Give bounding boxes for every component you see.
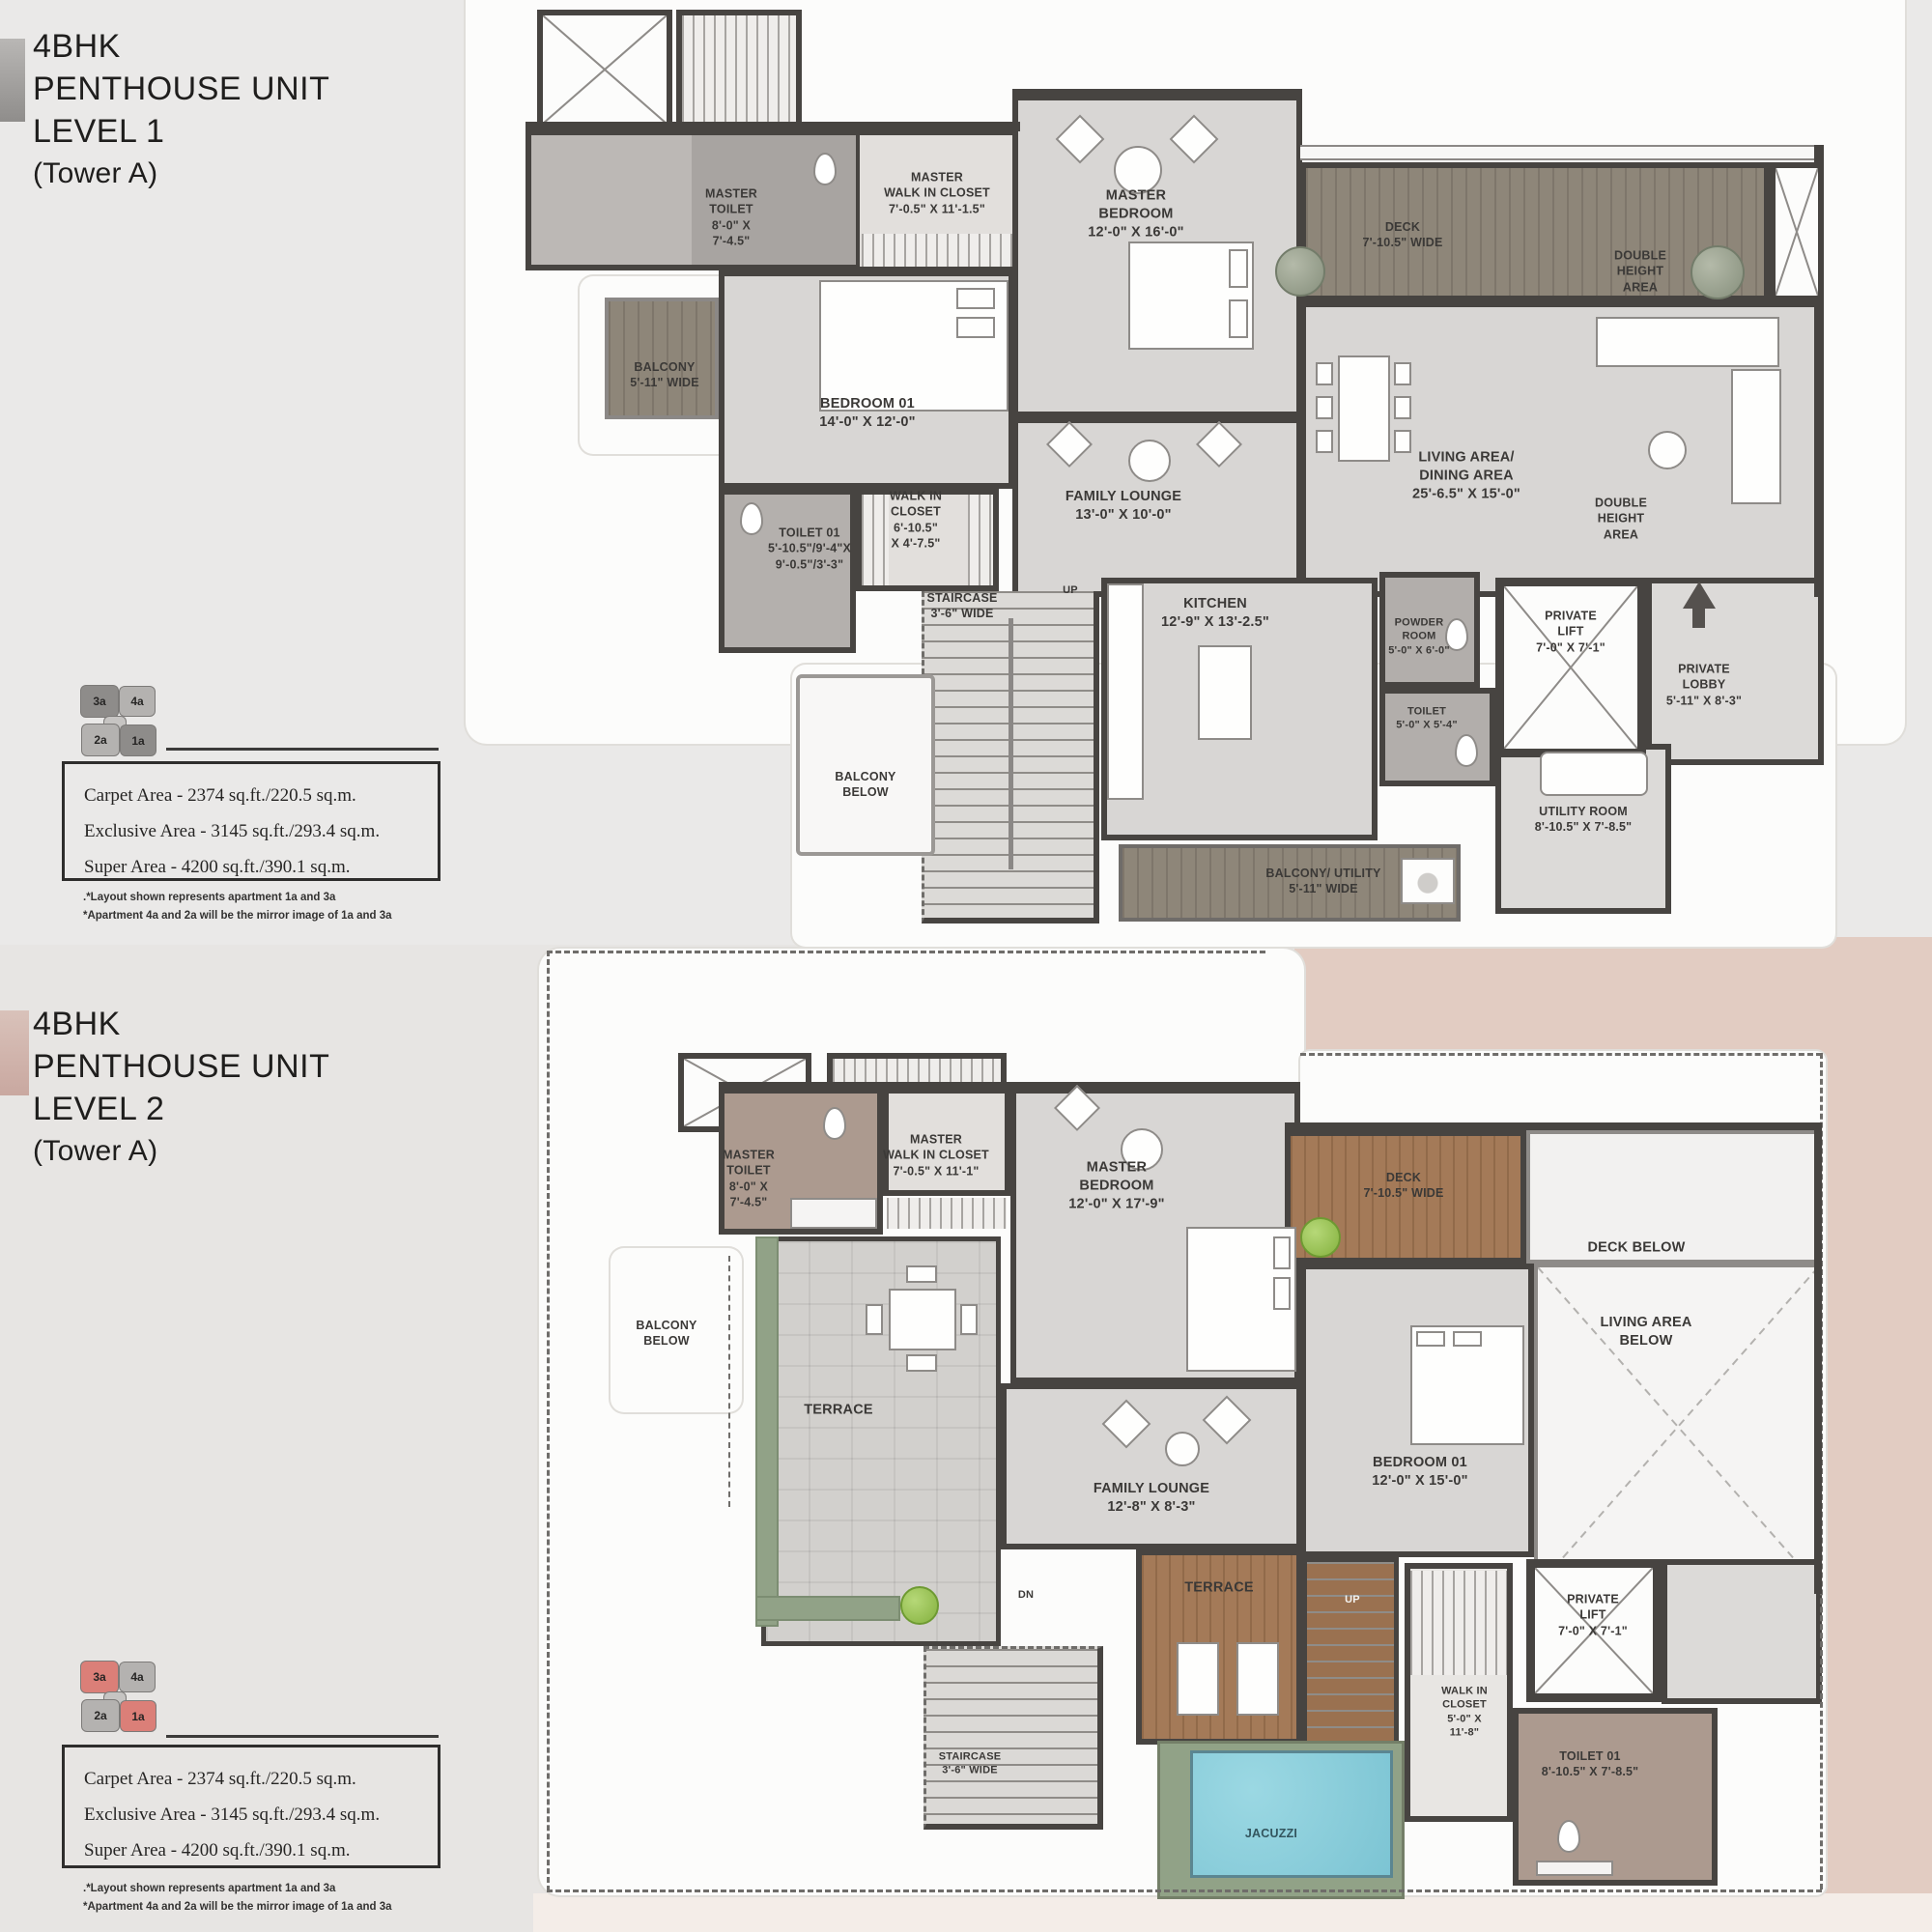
entry-arrow-stem	[1692, 609, 1705, 628]
tree-icon	[900, 1586, 939, 1625]
level1-footnotes: .*Layout shown represents apartment 1a a…	[83, 889, 624, 925]
pink-band-top	[1294, 937, 1932, 1053]
wall	[1010, 1082, 1300, 1090]
room-label-double-height-mid: DOUBLEHEIGHTAREA	[1595, 496, 1647, 543]
room-label-private-lift: PRIVATELIFT7'-0" X 7'-1"	[1558, 1592, 1628, 1639]
room-label-master-toilet: MASTERTOILET8'-0" X7'-4.5"	[723, 1148, 775, 1210]
level1-title-line: LEVEL 1	[33, 110, 329, 153]
pillow	[1273, 1277, 1291, 1310]
pillow	[1453, 1331, 1482, 1347]
room-label-balcony-utility: BALCONY/ UTILITY5'-11" WIDE	[1265, 866, 1380, 897]
footnote-line: *Apartment 4a and 2a will be the mirror …	[83, 907, 624, 925]
pillow	[956, 317, 995, 338]
dashed-boundary	[547, 951, 1265, 953]
keyplan-unit-3a: 3a	[81, 1662, 118, 1692]
planter-tree-icon	[1690, 245, 1745, 299]
level1-title: 4BHK PENTHOUSE UNIT LEVEL 1 (Tower A)	[33, 25, 329, 195]
outdoor-chair	[866, 1304, 883, 1335]
kitchen-counter	[1107, 583, 1144, 800]
dining-chair	[1316, 362, 1333, 385]
wardrobe-strip	[968, 495, 993, 585]
wood-staircase-up	[1302, 1557, 1399, 1748]
super-area: Super Area - 4200 sq.ft./390.1 sq.m.	[84, 849, 438, 885]
corner-window	[1770, 162, 1824, 301]
entry-arrow-icon	[1683, 582, 1716, 609]
label-balcony-below: BALCONYBELOW	[636, 1318, 696, 1350]
room-label-powder: POWDERROOM5'-0" X 6'-0"	[1388, 616, 1450, 658]
label-up: UP	[1063, 583, 1078, 597]
room-label-bedroom01: BEDROOM 0112'-0" X 15'-0"	[1372, 1454, 1467, 1491]
room-label-double-height-top: DOUBLEHEIGHTAREA	[1614, 248, 1666, 296]
vanity-counter	[790, 1198, 877, 1229]
dashed-boundary	[547, 1889, 1822, 1892]
sofa	[1596, 317, 1779, 367]
outdoor-chair	[960, 1304, 978, 1335]
room-label-terrace-left: TERRACE	[804, 1402, 873, 1420]
level2-title-line: PENTHOUSE UNIT	[33, 1045, 329, 1088]
dining-chair	[1316, 430, 1333, 453]
dining-chair	[1316, 396, 1333, 419]
room-label-master-bedroom: MASTERBEDROOM12'-0" X 17'-9"	[1068, 1159, 1164, 1214]
brochure-page: 4BHK PENTHOUSE UNIT LEVEL 1 (Tower A) 3a…	[0, 0, 1932, 1932]
room-label-bedroom01: BEDROOM 0114'-0" X 12'-0"	[819, 395, 915, 432]
label-balcony-below: BALCONYBELOW	[835, 769, 895, 801]
lift-lobby-room	[1662, 1559, 1822, 1704]
level1-title-line: PENTHOUSE UNIT	[33, 68, 329, 110]
sofa	[1731, 369, 1781, 504]
washing-machine	[1401, 858, 1455, 904]
keyplan-unit-2a: 2a	[82, 724, 119, 755]
level1-title-line: 4BHK	[33, 25, 329, 68]
planter-strip	[755, 1596, 900, 1621]
room-label-private-lift: PRIVATELIFT7'-0" X 7'-1"	[1536, 609, 1605, 656]
sun-lounger	[1236, 1642, 1279, 1716]
divider-rule	[166, 748, 439, 751]
room-label-toilet01: TOILET 015'-10.5"/9'-4"X9'-0.5"/3'-3"	[768, 526, 851, 573]
label-deck-below: DECK BELOW	[1587, 1239, 1685, 1258]
room-label-walkin-closet: WALK INCLOSET5'-0" X11'-8"	[1441, 1684, 1488, 1739]
planter-strip	[755, 1236, 779, 1627]
wall	[1285, 1122, 1822, 1130]
dining-table	[1338, 355, 1390, 462]
wall	[719, 1082, 1010, 1090]
room-label-staircase: STAIRCASE3'-6" WIDE	[926, 590, 997, 622]
label-jacuzzi: JACUZZI	[1245, 1826, 1297, 1841]
super-area: Super Area - 4200 sq.ft./390.1 sq.m.	[84, 1833, 438, 1868]
dashed-boundary	[728, 1256, 730, 1507]
room-label-family-lounge: FAMILY LOUNGE12'-8" X 8'-3"	[1094, 1480, 1209, 1517]
carpet-area: Carpet Area - 2374 sq.ft./220.5 sq.m.	[84, 1761, 438, 1797]
toilet-icon	[813, 153, 837, 185]
level2-footnotes: .*Layout shown represents apartment 1a a…	[83, 1880, 624, 1917]
round-table	[1165, 1432, 1200, 1466]
tower-thumbnail-level2	[0, 1010, 29, 1095]
jacuzzi-pool	[1190, 1750, 1393, 1878]
pillow	[1229, 249, 1248, 288]
dashed-boundary	[547, 951, 550, 1891]
level1-area-box: Carpet Area - 2374 sq.ft./220.5 sq.m. Ex…	[62, 761, 440, 881]
level2-keyplan: 3a 4a 2a 1a	[75, 1656, 168, 1739]
toilet-icon	[740, 502, 763, 535]
exclusive-area: Exclusive Area - 3145 sq.ft./293.4 sq.m.	[84, 813, 438, 849]
wall	[1012, 89, 1302, 99]
toilet-icon	[1557, 1820, 1580, 1853]
exclusive-area: Exclusive Area - 3145 sq.ft./293.4 sq.m.	[84, 1797, 438, 1833]
room-label-toilet: TOILET5'-0" X 5'-4"	[1396, 705, 1458, 733]
room-label-utility: UTILITY ROOM8'-10.5" X 7'-8.5"	[1535, 804, 1633, 836]
room-label-deck: DECK7'-10.5" WIDE	[1362, 219, 1442, 251]
wall	[1814, 1122, 1822, 1594]
utility-cot	[1540, 752, 1648, 796]
footnote-line: *Apartment 4a and 2a will be the mirror …	[83, 1898, 624, 1917]
dining-chair	[1394, 430, 1411, 453]
outdoor-chair	[906, 1265, 937, 1283]
room-label-toilet01: TOILET 018'-10.5" X 7'-8.5"	[1542, 1748, 1639, 1780]
room-label-private-lobby: PRIVATELOBBY5'-11" X 8'-3"	[1666, 662, 1742, 709]
keyplan-unit-4a: 4a	[120, 1662, 155, 1691]
label-dn: DN	[1018, 1588, 1034, 1602]
room-label-kitchen: KITCHEN12'-9" X 13'-2.5"	[1161, 595, 1269, 632]
pillow	[1229, 299, 1248, 338]
dashed-boundary	[1300, 1053, 1822, 1056]
coffee-table	[1648, 431, 1687, 469]
level1-keyplan: 3a 4a 2a 1a	[75, 680, 168, 763]
room-label-master-wic: MASTERWALK IN CLOSET7'-0.5" X 11'-1"	[883, 1132, 989, 1179]
room-label-balcony: BALCONY5'-11" WIDE	[630, 359, 699, 391]
wardrobe-strip	[1410, 1571, 1507, 1675]
tree-icon	[1300, 1217, 1341, 1258]
label-living-area-below: LIVING AREABELOW	[1600, 1314, 1691, 1350]
level2-title-line: LEVEL 2	[33, 1088, 329, 1130]
staircase-void	[923, 1646, 1103, 1830]
outdoor-table	[889, 1289, 956, 1350]
wardrobe-strip	[862, 495, 889, 585]
level2-title-line: 4BHK	[33, 1003, 329, 1045]
room-label-master-wic: MASTERWALK IN CLOSET7'-0.5" X 11'-1.5"	[884, 170, 990, 217]
dining-chair	[1394, 362, 1411, 385]
toilet-room	[1379, 688, 1495, 786]
level2-area-box: Carpet Area - 2374 sq.ft./220.5 sq.m. Ex…	[62, 1745, 440, 1868]
keyplan-unit-1a: 1a	[121, 1701, 156, 1731]
pillow	[956, 288, 995, 309]
footnote-line: .*Layout shown represents apartment 1a a…	[83, 1880, 624, 1898]
label-up: UP	[1345, 1593, 1360, 1606]
divider-rule	[166, 1735, 439, 1738]
round-table	[1128, 440, 1171, 482]
keyplan-unit-1a: 1a	[121, 725, 156, 755]
wall	[526, 122, 1020, 131]
carpet-area: Carpet Area - 2374 sq.ft./220.5 sq.m.	[84, 778, 438, 813]
dining-chair	[1394, 396, 1411, 419]
planter-tree-icon	[1275, 246, 1325, 297]
level2-title: 4BHK PENTHOUSE UNIT LEVEL 2 (Tower A)	[33, 1003, 329, 1173]
room-label-walkin-closet: WALK INCLOSET6'-10.5"X 4'-7.5"	[890, 489, 942, 552]
level2-tower-subtitle: (Tower A)	[33, 1130, 329, 1173]
balcony-below-area	[796, 674, 935, 856]
pink-band-right	[1820, 1051, 1932, 1895]
keyplan-unit-3a: 3a	[81, 686, 118, 717]
level1-tower-subtitle: (Tower A)	[33, 153, 329, 195]
toilet-icon	[1455, 734, 1478, 767]
room-label-family-lounge: FAMILY LOUNGE13'-0" X 10'-0"	[1065, 488, 1181, 525]
wardrobe-closet	[676, 10, 802, 129]
sun-lounger	[1177, 1642, 1219, 1716]
pillow	[1416, 1331, 1445, 1347]
wardrobe-strip	[887, 1198, 1007, 1229]
room-label-living-dining: LIVING AREA/DINING AREA25'-6.5" X 15'-0"	[1412, 449, 1520, 504]
living-area-below-void	[1534, 1264, 1822, 1590]
room-label-deck: DECK7'-10.5" WIDE	[1363, 1170, 1443, 1202]
toilet01-room	[1513, 1708, 1718, 1886]
wardrobe-strip	[862, 234, 1012, 267]
toilet-icon	[823, 1107, 846, 1140]
footnote-line: .*Layout shown represents apartment 1a a…	[83, 889, 624, 907]
room-label-terrace-right: TERRACE	[1184, 1579, 1254, 1598]
room-label-master-toilet: MASTERTOILET8'-0" X7'-4.5"	[705, 186, 757, 249]
room-label-master-bedroom: MASTERBEDROOM12'-0" X 16'-0"	[1088, 187, 1183, 242]
keyplan-unit-2a: 2a	[82, 1700, 119, 1731]
window-band	[1300, 145, 1822, 160]
outdoor-chair	[906, 1354, 937, 1372]
shower-enclosure	[537, 10, 672, 129]
keyplan-unit-4a: 4a	[120, 687, 155, 716]
kitchen-island	[1198, 645, 1252, 740]
terrace-left-area	[761, 1236, 1001, 1646]
tower-thumbnail-level1	[0, 39, 25, 122]
staircase-divider	[1009, 618, 1013, 869]
private-lift-shaft	[1495, 578, 1646, 757]
room-label-staircase: STAIRCASE3'-6" WIDE	[939, 1750, 1002, 1778]
pillow	[1273, 1236, 1291, 1269]
family-lounge-room	[1001, 1383, 1302, 1549]
bottom-strip	[533, 1893, 1932, 1932]
vanity-counter	[1536, 1861, 1613, 1876]
